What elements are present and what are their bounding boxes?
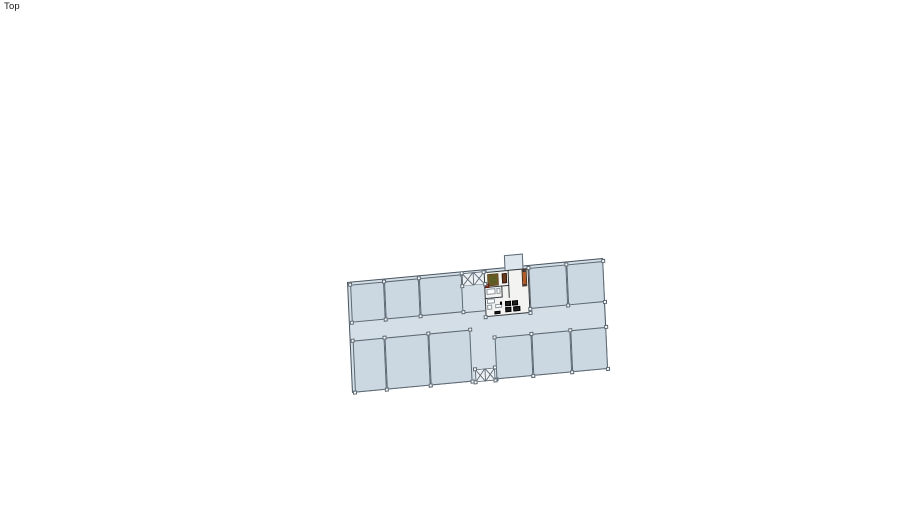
room-bottom-4[interactable] <box>495 334 534 379</box>
kitchen-counter[interactable] <box>486 298 494 303</box>
room-bottom-6[interactable] <box>570 327 607 372</box>
room-bottom-5[interactable] <box>531 330 572 375</box>
column <box>493 378 497 382</box>
column <box>528 311 532 315</box>
column <box>564 262 568 266</box>
column <box>604 325 608 329</box>
dining-table[interactable] <box>487 274 498 285</box>
column <box>473 380 477 384</box>
room-bottom-1[interactable] <box>352 338 387 392</box>
column <box>605 366 609 370</box>
column <box>384 317 388 321</box>
column <box>382 335 386 339</box>
bath-fixture[interactable] <box>496 287 501 294</box>
column <box>350 339 354 343</box>
bath-fixture[interactable] <box>486 288 495 295</box>
column <box>352 390 356 394</box>
column <box>468 327 472 331</box>
room-bottom-3[interactable] <box>428 330 472 385</box>
modeling-viewport[interactable]: Top <box>0 0 910 512</box>
wall-segment <box>463 310 485 313</box>
column <box>348 282 352 286</box>
column <box>460 284 464 288</box>
column <box>418 314 422 318</box>
building[interactable] <box>347 258 608 393</box>
room-top-2[interactable] <box>384 278 421 320</box>
column <box>484 315 488 319</box>
column <box>531 373 535 377</box>
armchair[interactable] <box>505 307 511 313</box>
room-top-1[interactable] <box>350 281 386 323</box>
door-mat[interactable] <box>494 311 500 315</box>
column <box>602 300 606 304</box>
sofa[interactable] <box>513 305 520 311</box>
column <box>461 310 465 314</box>
column <box>429 383 433 387</box>
column <box>483 282 487 286</box>
column <box>382 279 386 283</box>
column <box>493 365 497 369</box>
column <box>492 335 496 339</box>
column <box>473 367 477 371</box>
viewport-label: Top <box>4 1 20 12</box>
kitchen-appliance[interactable] <box>487 304 492 309</box>
bench[interactable] <box>522 269 528 286</box>
column <box>459 271 463 275</box>
column <box>566 303 570 307</box>
column <box>417 276 421 280</box>
column <box>385 387 389 391</box>
armchair[interactable] <box>511 300 517 306</box>
room-bottom-2[interactable] <box>385 334 431 390</box>
room-top-5[interactable] <box>566 261 604 306</box>
column <box>482 270 486 274</box>
column <box>526 266 530 270</box>
column <box>601 258 605 262</box>
stove[interactable] <box>499 302 502 305</box>
column <box>426 331 430 335</box>
column <box>529 332 533 336</box>
column <box>568 328 572 332</box>
room-top-4[interactable] <box>528 264 568 309</box>
armchair[interactable] <box>504 301 510 307</box>
column <box>570 370 574 374</box>
room-top-3[interactable] <box>419 274 464 316</box>
cabinet[interactable] <box>501 273 506 283</box>
column <box>349 321 353 325</box>
